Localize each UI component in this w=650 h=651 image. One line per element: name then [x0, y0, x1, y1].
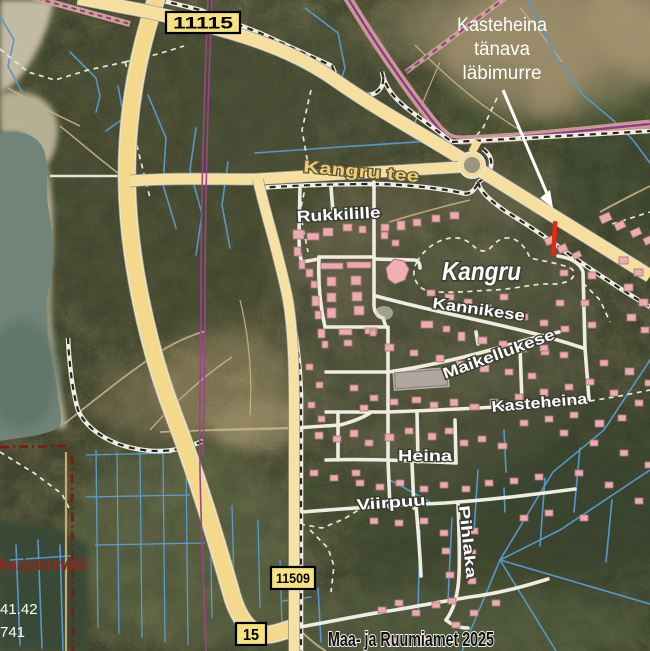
svg-text:41.42: 41.42: [0, 601, 38, 618]
svg-text:Kasteheina: Kasteheina: [457, 15, 547, 36]
svg-text:11115: 11115: [173, 14, 233, 33]
svg-text:Kangru: Kangru: [442, 256, 521, 286]
svg-text:Heina: Heina: [398, 448, 452, 465]
svg-text:tänava: tänava: [474, 39, 530, 60]
svg-text:Maa- ja Ruumiamet 2025: Maa- ja Ruumiamet 2025: [328, 629, 494, 651]
svg-text:15: 15: [243, 627, 259, 644]
svg-text:harjutusväli: harjutusväli: [0, 556, 86, 574]
svg-text:741: 741: [0, 624, 25, 641]
svg-text:11509: 11509: [276, 571, 310, 586]
svg-text:läbimurre: läbimurre: [463, 63, 542, 84]
